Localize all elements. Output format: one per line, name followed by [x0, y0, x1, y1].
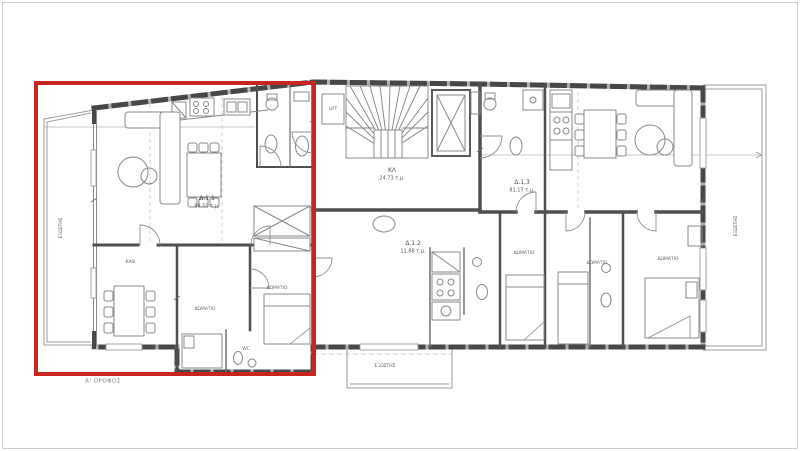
- unit1-code-label: Δ.1.1: [199, 196, 215, 202]
- balcony-left-label: ΕΞΩΣΤΗΣ: [60, 218, 65, 239]
- unit1-area-label: 86.50 τ.μ.: [194, 205, 219, 210]
- wc-label: WC: [242, 348, 250, 353]
- elevator: [432, 90, 480, 156]
- bedroom-label: ΔΩΜΑΤΙΟ: [586, 262, 607, 267]
- unit3-furniture: [506, 90, 702, 344]
- balcony-bottom-label: ΕΞΩΣΤΗΣ: [375, 365, 396, 370]
- unit3-area-label: 81.17 τ.μ.: [509, 189, 534, 194]
- bedroom-label: ΔΩΜΑΤΙΟ: [657, 258, 678, 263]
- bedroom-label: ΔΩΜΑΤΙΟ: [266, 287, 287, 292]
- unit2-code-label: Δ.1.2: [405, 241, 421, 247]
- living-room-label: ΚΑΘ.: [125, 261, 136, 266]
- floor-title-label: Α' ΟΡΟΦΟΣ: [85, 379, 121, 385]
- bathroom-fixtures: [484, 90, 543, 155]
- balcony-bottom: [347, 347, 452, 388]
- lift-label: LIFT: [329, 107, 337, 111]
- stairwell-area-label: 24.73 τ.μ.: [379, 177, 404, 182]
- unit3-code-label: Δ.1.3: [514, 180, 530, 186]
- floorplan-screenshot: Δ.1.1 86.50 τ.μ. ΚΛ 24.73 τ.μ. Δ.1.2 11.…: [0, 0, 800, 451]
- bedroom-label: ΔΩΜΑΤΙΟ: [194, 308, 215, 313]
- unit2-area-label: 11.88 τ.μ.: [400, 250, 425, 255]
- stairwell-code-label: ΚΛ: [388, 168, 396, 174]
- selected-unit-highlight[interactable]: [34, 81, 316, 376]
- staircase: [346, 86, 428, 158]
- balcony-right-label: ΕΞΩΣΤΗΣ: [735, 216, 740, 237]
- bedroom-label: ΔΩΜΑΤΙΟ: [513, 252, 534, 257]
